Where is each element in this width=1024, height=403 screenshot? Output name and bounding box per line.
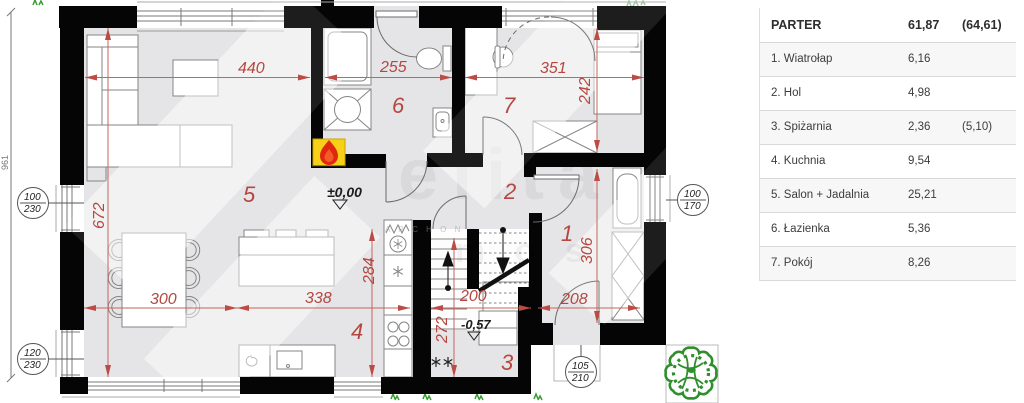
svg-text:100: 100: [24, 192, 41, 203]
svg-text:210: 210: [571, 373, 589, 384]
svg-text:3: 3: [501, 350, 514, 375]
svg-text:105: 105: [572, 361, 589, 372]
svg-text:242: 242: [577, 77, 594, 105]
svg-text:120: 120: [24, 348, 41, 359]
svg-text:±0,00: ±0,00: [327, 184, 362, 200]
svg-text:A R C H O N: A R C H O N: [385, 225, 463, 234]
svg-text:100: 100: [684, 189, 701, 200]
svg-text:300: 300: [150, 291, 177, 308]
svg-text:6: 6: [392, 93, 405, 118]
svg-text:961: 961: [0, 155, 10, 170]
svg-text:4: 4: [351, 319, 363, 344]
svg-text:255: 255: [379, 59, 407, 76]
svg-text:230: 230: [23, 204, 41, 215]
svg-text:306: 306: [579, 237, 596, 264]
svg-text:200: 200: [459, 288, 487, 305]
svg-text:272: 272: [434, 316, 451, 344]
svg-text:2: 2: [503, 179, 516, 204]
svg-text:-0,57: -0,57: [461, 317, 491, 332]
svg-text:230: 230: [23, 360, 41, 371]
svg-text:351: 351: [540, 60, 567, 77]
svg-text:338: 338: [305, 290, 332, 307]
svg-text:440: 440: [238, 60, 265, 77]
svg-text:208: 208: [560, 291, 588, 308]
svg-text:284: 284: [361, 257, 378, 285]
svg-text:1: 1: [561, 221, 573, 246]
svg-text:672: 672: [91, 202, 108, 229]
svg-text:5: 5: [243, 182, 256, 207]
svg-text:7: 7: [503, 93, 516, 118]
svg-text:170: 170: [684, 201, 701, 212]
